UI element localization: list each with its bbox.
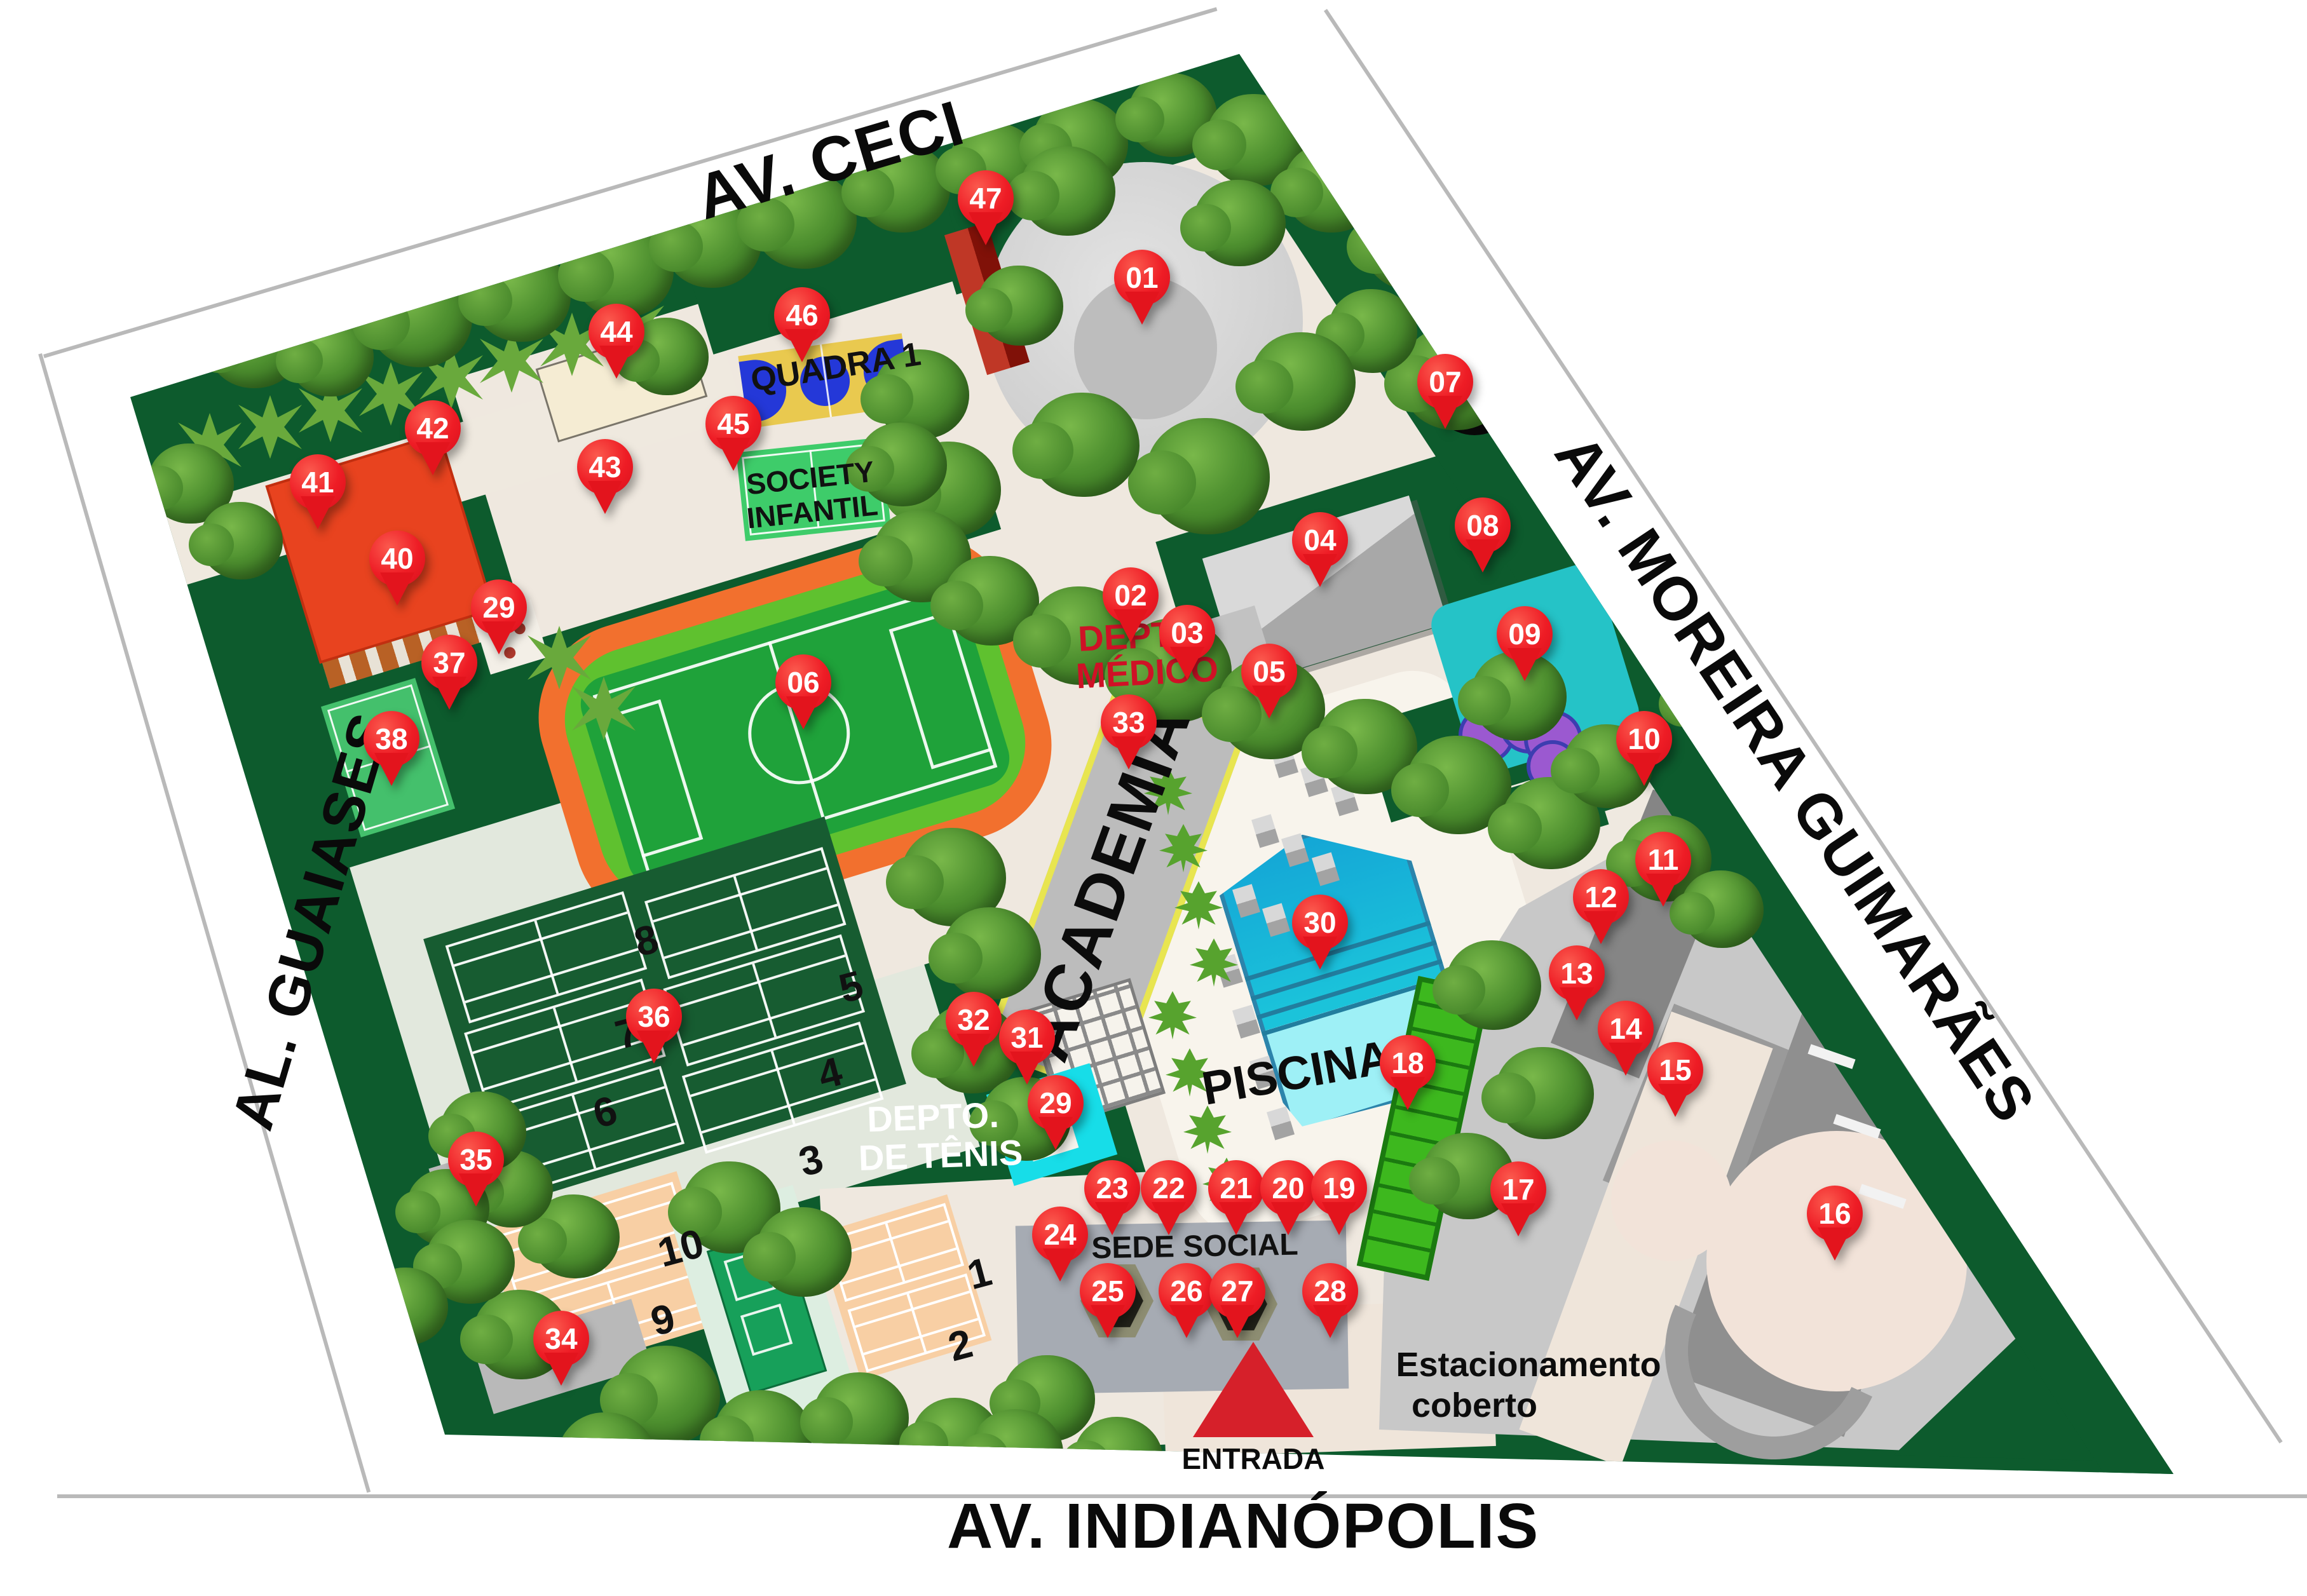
label-depto-tenis-2: DE TÊNIS [858,1132,1023,1179]
map-pin-15[interactable]: 15 [1647,1042,1703,1098]
tree [1362,193,1467,291]
map-pin-05[interactable]: 05 [1241,644,1297,700]
tree [813,1372,909,1462]
label-estacionamento-2: coberto [1412,1386,1537,1425]
tree [558,1412,657,1505]
map-pin-32[interactable]: 32 [946,992,1002,1048]
map-pin-14[interactable]: 14 [1598,1001,1654,1057]
label-estacionamento-1: Estacionamento [1396,1345,1661,1384]
tree [943,907,1041,1000]
tree [367,269,472,367]
tree [1028,393,1140,497]
map-pin-01[interactable]: 01 [1114,250,1170,306]
map-pin-37[interactable]: 37 [421,635,477,691]
map-pin-36[interactable]: 36 [626,989,682,1045]
map-pin-43[interactable]: 43 [577,439,633,495]
tree [1439,248,1541,343]
map-pin-34[interactable]: 34 [533,1311,589,1367]
map-pin-40[interactable]: 40 [369,531,425,586]
map-pin-22[interactable]: 22 [1141,1160,1197,1216]
tree [200,502,283,579]
map-pin-11[interactable]: 11 [1635,832,1691,888]
tree [1194,180,1286,266]
tree [756,1207,852,1297]
map-pin-42[interactable]: 42 [405,400,461,456]
tree [1251,332,1356,431]
map-pin-47[interactable]: 47 [958,170,1014,226]
map-pin-30[interactable]: 30 [1292,895,1348,950]
map-pin-09[interactable]: 09 [1497,606,1553,662]
map-pin-08[interactable]: 08 [1455,497,1511,553]
map-pin-29-b[interactable]: 29 [1028,1075,1084,1131]
street-label-indianopolis: AV. INDIANÓPOLIS [947,1490,1539,1563]
club-map: AV. CECI AV. MOREIRA GUIMARÃES AL. GUAIA… [0,0,2307,1596]
map-pin-06[interactable]: 06 [775,654,831,710]
tree [365,1268,448,1345]
map-pin-10[interactable]: 10 [1616,711,1672,767]
map-pin-24[interactable]: 24 [1032,1207,1088,1262]
map-pin-17[interactable]: 17 [1490,1161,1546,1217]
map-pin-28[interactable]: 28 [1302,1263,1358,1319]
tree [1284,143,1379,233]
map-pin-29[interactable]: 29 [471,579,527,635]
map-pin-27[interactable]: 27 [1209,1263,1265,1319]
map-pin-20[interactable]: 20 [1260,1160,1316,1216]
tree [977,266,1063,346]
tree [1146,418,1270,534]
map-pin-38[interactable]: 38 [364,711,419,767]
tree [714,1390,812,1483]
map-pin-23[interactable]: 23 [1084,1160,1140,1216]
map-pin-44[interactable]: 44 [589,304,644,360]
map-pin-04[interactable]: 04 [1292,512,1348,568]
tree [1074,1417,1163,1501]
tree [971,1409,1063,1496]
label-entrada: ENTRADA [1182,1442,1325,1476]
map-pin-25[interactable]: 25 [1080,1263,1136,1319]
tree [1495,1047,1594,1140]
map-pin-35[interactable]: 35 [448,1132,504,1187]
map-pin-19[interactable]: 19 [1311,1160,1367,1216]
map-pin-26[interactable]: 26 [1159,1263,1215,1319]
map-pin-13[interactable]: 13 [1549,945,1605,1001]
map-pin-03[interactable]: 03 [1159,605,1215,661]
map-pin-21[interactable]: 21 [1208,1160,1264,1216]
tree [1681,870,1764,948]
map-pin-16[interactable]: 16 [1807,1186,1863,1241]
tree [472,250,571,342]
map-pin-07[interactable]: 07 [1417,354,1473,410]
map-pin-33[interactable]: 33 [1101,694,1157,750]
map-pin-12[interactable]: 12 [1573,869,1629,925]
map-pin-41[interactable]: 41 [290,454,346,510]
tree [1020,146,1115,236]
map-pin-31[interactable]: 31 [999,1010,1055,1065]
tree [1446,940,1541,1030]
map-pin-45[interactable]: 45 [705,396,761,452]
map-pin-02[interactable]: 02 [1103,567,1159,623]
map-pin-18[interactable]: 18 [1380,1035,1436,1091]
map-pin-46[interactable]: 46 [774,287,830,343]
